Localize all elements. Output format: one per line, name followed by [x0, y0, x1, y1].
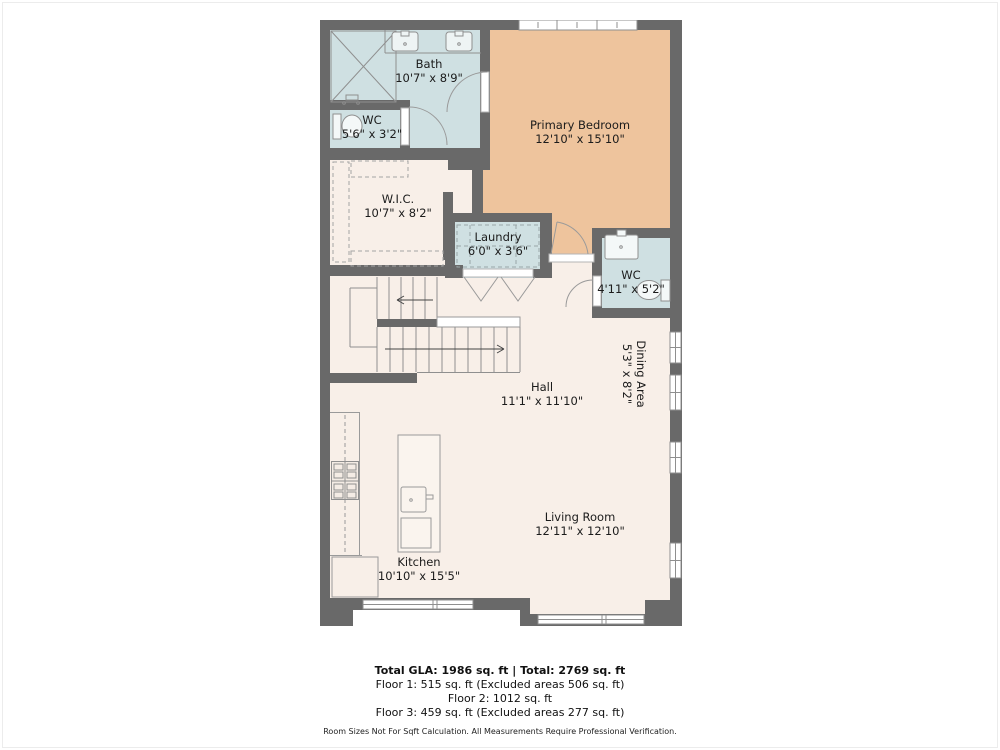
room-name: Hall: [501, 380, 583, 394]
wc2-sink: [605, 230, 638, 259]
floor1-line: Floor 1: 515 sq. ft (Excluded areas 506 …: [0, 678, 1000, 692]
room-label-wc1: WC 5'6" x 3'2": [342, 113, 402, 141]
disclaimer-text: Room Sizes Not For Sqft Calculation. All…: [0, 727, 1000, 737]
room-label-wc2: WC 4'11" x 5'2": [597, 268, 665, 296]
laundry-bifold-doors: [463, 269, 535, 301]
area-summary: Total GLA: 1986 sq. ft | Total: 2769 sq.…: [0, 664, 1000, 737]
bedroom-door-arc: [551, 222, 588, 254]
room-name: Dining Area: [634, 340, 648, 407]
room-name: Laundry: [468, 230, 528, 244]
room-dims: 11'1" x 11'10": [501, 394, 583, 408]
bedroom-top-window: [519, 20, 637, 30]
room-label-living-room: Living Room 12'11" x 12'10": [535, 510, 625, 538]
room-dims: 4'11" x 5'2": [597, 282, 665, 296]
room-label-laundry: Laundry 6'0" x 3'6": [468, 230, 528, 258]
room-label-kitchen: Kitchen 10'10" x 15'5": [378, 555, 460, 583]
room-label-primary-bedroom: Primary Bedroom 12'10" x 15'10": [530, 118, 630, 146]
room-name: Kitchen: [378, 555, 460, 569]
room-label-wic: W.I.C. 10'7" x 8'2": [364, 192, 432, 220]
room-dims: 5'3" x 8'2": [620, 340, 634, 407]
room-label-hall: Hall 11'1" x 11'10": [501, 380, 583, 408]
room-dims: 10'7" x 8'2": [364, 206, 432, 220]
room-label-bath: Bath 10'7" x 8'9": [395, 57, 463, 85]
kitchen-island: [398, 435, 440, 552]
room-dims: 10'7" x 8'9": [395, 71, 463, 85]
room-name: Living Room: [535, 510, 625, 524]
kitchen-counter: [330, 412, 378, 597]
floor-plan-page: Bath 10'7" x 8'9" WC 5'6" x 3'2" Primary…: [0, 0, 1000, 750]
staircase: [350, 277, 520, 373]
room-name: WC: [342, 113, 402, 127]
floor3-line: Floor 3: 459 sq. ft (Excluded areas 277 …: [0, 706, 1000, 720]
shower-fixture: [331, 31, 396, 104]
room-name: Bath: [395, 57, 463, 71]
room-dims: 6'0" x 3'6": [468, 244, 528, 258]
bath-vanity-sinks: [385, 30, 481, 53]
wc2-door-arc: [566, 280, 593, 307]
floor2-line: Floor 2: 1012 sq. ft: [0, 692, 1000, 706]
room-name: W.I.C.: [364, 192, 432, 206]
room-dims: 12'10" x 15'10": [530, 132, 630, 146]
room-label-dining-area: Dining Area 5'3" x 8'2": [620, 340, 648, 407]
total-gla-line: Total GLA: 1986 sq. ft | Total: 2769 sq.…: [0, 664, 1000, 678]
room-name: Primary Bedroom: [530, 118, 630, 132]
room-dims: 12'11" x 12'10": [535, 524, 625, 538]
wc1-door-arc: [409, 107, 447, 145]
plan-linework: [320, 20, 682, 632]
room-name: WC: [597, 268, 665, 282]
room-dims: 10'10" x 15'5": [378, 569, 460, 583]
room-dims: 5'6" x 3'2": [342, 127, 402, 141]
stove-burners: [332, 462, 359, 500]
